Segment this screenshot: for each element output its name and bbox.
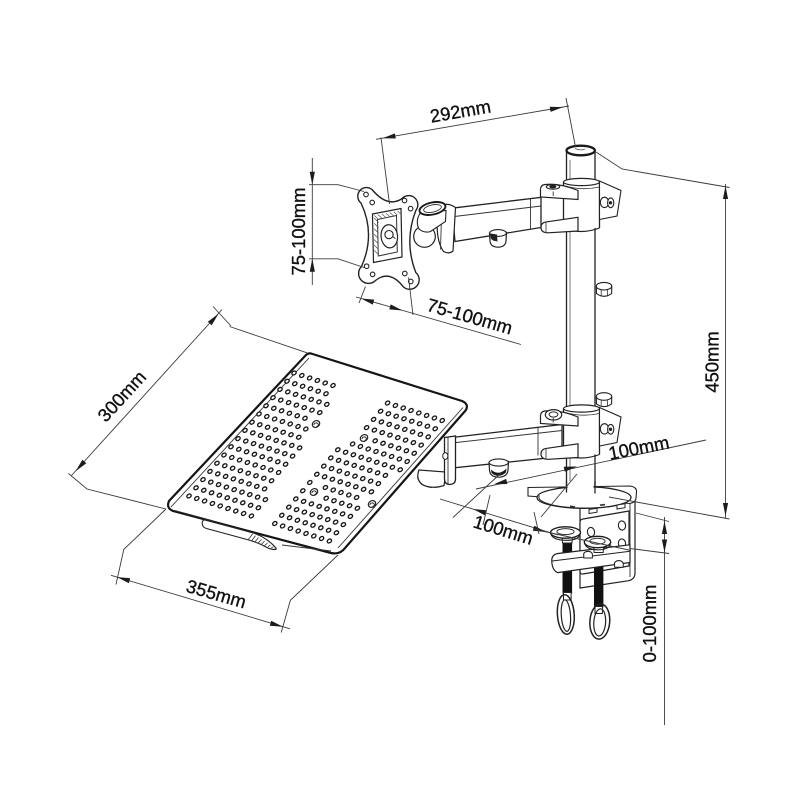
svg-text:75-100mm: 75-100mm xyxy=(288,188,309,276)
svg-text:450mm: 450mm xyxy=(702,331,723,392)
svg-text:0-100mm: 0-100mm xyxy=(639,585,660,663)
